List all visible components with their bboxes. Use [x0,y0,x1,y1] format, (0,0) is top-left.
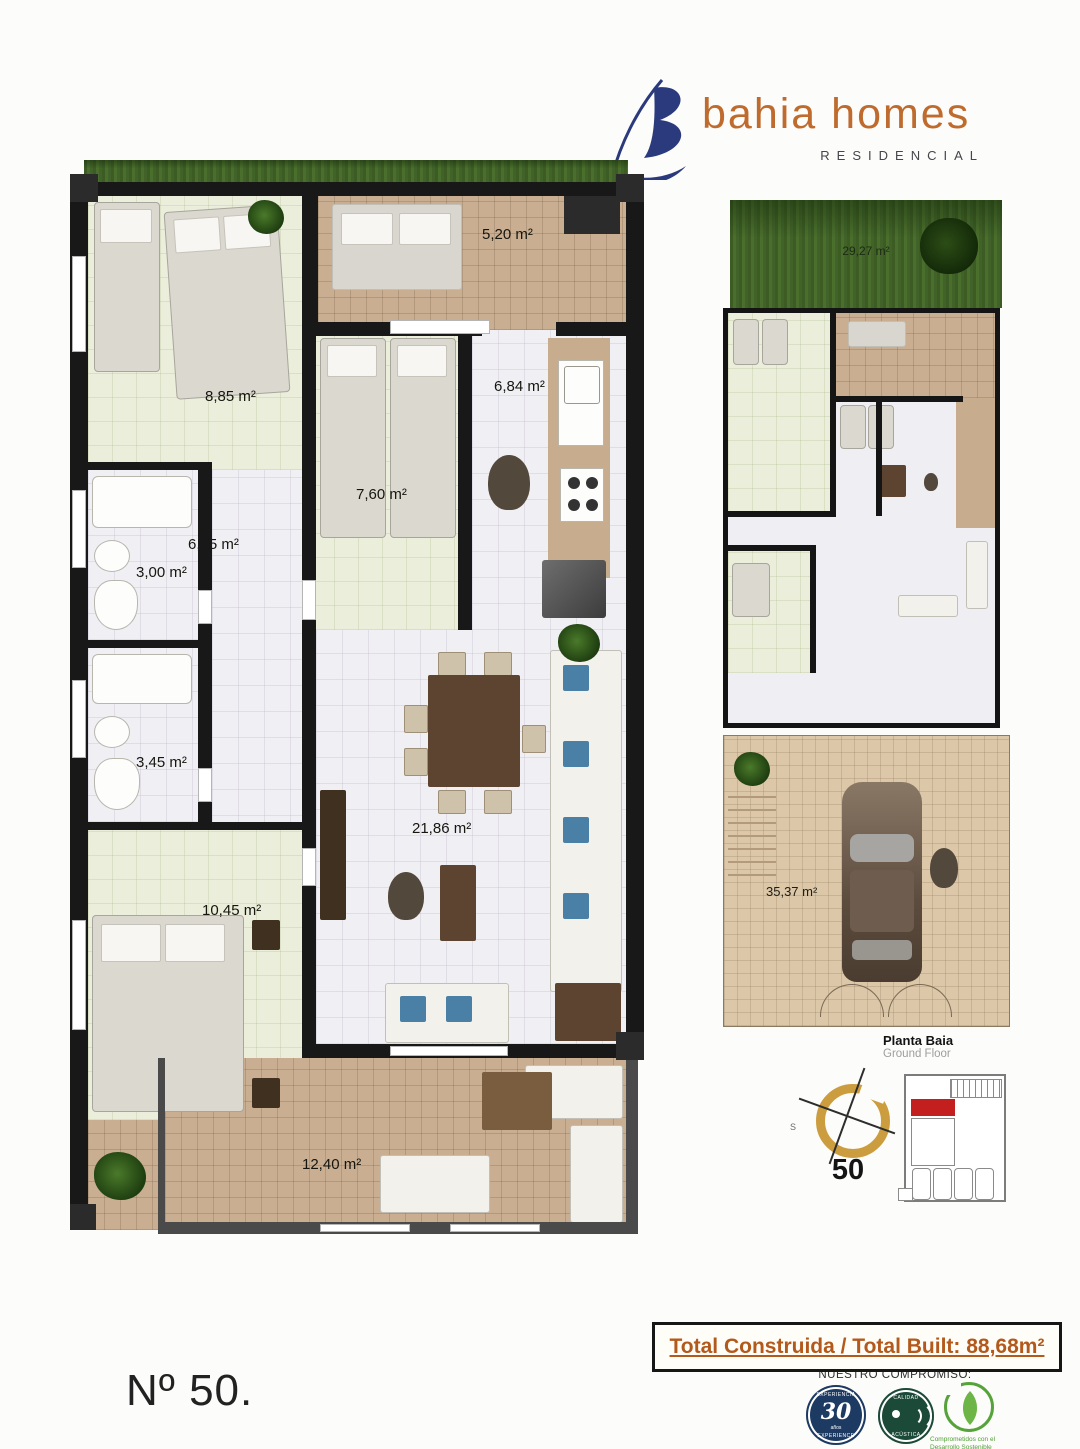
brand-name: bahia homes [702,90,970,139]
wall-bedroom-terrace [302,184,318,330]
acoustic-badge: CALIDAD ACÚSTICA [878,1388,934,1444]
plant [734,752,770,786]
wall-bath1-bath2 [88,640,212,648]
site-block [898,1188,913,1201]
basin-2 [94,716,130,748]
chair [438,790,466,814]
wall-bath1-top [88,462,212,470]
burner [568,499,580,511]
area-label-kitchen: 6,84 m² [494,378,545,395]
car-roof [850,870,914,932]
mini-sofa [898,595,958,617]
tree [920,218,978,274]
caption-subtitle: Ground Floor [883,1048,1003,1060]
steps [728,794,776,876]
compass-unit-number: 50 [800,1154,896,1187]
area-label-driveway: 35,37 m² [766,884,817,899]
bed-twin-1 [94,202,160,372]
sofa-right [550,650,622,992]
site-block [975,1168,994,1200]
pillow [101,924,161,962]
wall-terrace-right [626,1044,638,1234]
wall-bedroom-kitchen [458,330,472,630]
wall-hall-living [302,330,316,1044]
pillar-bottom-left [70,1204,96,1230]
badge-bottom-text: EXPERIENCE [806,1433,866,1439]
unit-number-label: Nº 50. [126,1366,253,1416]
plant [94,1152,146,1200]
ground-floor-plan: 29,27 m² [715,195,1015,1067]
window-left-2 [72,490,86,568]
pillar-mid-right [616,1032,644,1060]
area-label-terrace-top: 5,20 m² [482,226,533,243]
mini-wall [728,545,816,551]
sink-basin [564,366,600,404]
area-label-bedroom-small: 7,60 m² [356,486,407,503]
compass-south-letter: S [790,1122,796,1132]
area-label-living: 21,86 m² [412,820,471,837]
corner-table [555,983,621,1041]
terrace-sofa-2 [570,1125,623,1223]
floor-plan-page: bahia homes RESIDENCIAL [0,0,1080,1449]
area-label-hallway: 6,45 m² [188,536,239,553]
garden: 29,27 m² [730,200,1002,308]
compass: S 50 [800,1078,900,1188]
brand-subtitle: RESIDENCIAL [774,148,984,163]
pillow [100,209,152,243]
main-floor-plan: 8,85 m² 5,20 m² 7,60 m² 6,84 m² 6,45 m² … [70,160,648,1262]
car [842,782,922,982]
badge-top-text: EXPERIENCIA [806,1392,866,1398]
badge-number: 30 [806,1399,866,1425]
mini-wall [810,548,816,673]
chair [438,652,466,676]
sustainability-badge [944,1382,994,1432]
burner [568,477,580,489]
toilet-1 [94,580,138,630]
terrace-table [482,1072,552,1130]
area-label-bathroom-1: 3,00 m² [136,564,187,581]
mini-wall [876,398,882,516]
door-terrace-bottom [390,1046,508,1056]
mini-sofa [848,321,906,347]
plant [558,624,600,662]
mini-table [880,465,906,497]
leaf-icon [953,1391,987,1425]
cushion [563,893,589,919]
window-left-4 [72,920,86,1030]
person-figure [930,848,958,888]
car-windshield [850,834,914,862]
site-block [912,1168,931,1200]
bed-small-2 [390,338,456,538]
chair [484,790,512,814]
sound-wave-arc [904,1402,932,1430]
badge-top-text: CALIDAD [878,1395,934,1401]
pillow [173,216,221,253]
kitchen-sink [558,360,604,446]
cushion [563,741,589,767]
bathtub-2 [92,654,192,704]
mini-kitchen [956,398,995,528]
dining-table [428,675,520,787]
plan-caption: Planta Baia Ground Floor [883,1033,1003,1060]
site-block [911,1118,955,1166]
door-bedroom-master [302,848,316,886]
badge-sub-text: años [806,1425,866,1431]
site-row-top [950,1079,1002,1098]
terrace-top-sofa [332,204,462,290]
pillar-top-right [616,174,644,202]
garage-door-arc [888,984,952,1017]
driveway: 35,37 m² [723,735,1010,1027]
cushion [563,665,589,691]
experience-badge: EXPERIENCIA 30 años EXPERIENCE [806,1385,866,1445]
site-highlight-unit [911,1099,955,1116]
mini-bed [840,405,866,449]
sustainability-caption-line2: Desarrollo Sostenible [930,1444,1030,1449]
tv-cabinet [320,790,346,920]
cushion [400,996,426,1022]
wall-under-terrace-2 [556,322,628,336]
cushion [446,996,472,1022]
burner [586,477,598,489]
garage-door-arc [820,984,884,1017]
bed-small-1 [320,338,386,538]
sustainability-caption: Comprometidos con el Desarrollo Sostenib… [930,1436,1030,1449]
area-label-master: 10,45 m² [202,902,261,919]
nightstand [252,1078,280,1108]
chair [522,725,546,753]
car-rear-window [852,940,912,960]
caption-title: Planta Baia [883,1033,1003,1048]
pillow [397,345,447,377]
window-bottom-2 [450,1224,540,1232]
person-figure [488,455,530,510]
door-terrace-top [390,320,490,334]
chair [404,748,428,776]
site-block [933,1168,952,1200]
pillow [327,345,377,377]
mini-bed [733,319,759,365]
site-block [954,1168,973,1200]
mini-apartment-plan [723,308,1000,728]
total-built-label: Total Construida / Total Built: 88,68m² [670,1335,1045,1359]
person-figure [388,872,424,920]
window-bottom-1 [320,1224,410,1232]
badge-bottom-text: ACÚSTICA [878,1432,934,1438]
pillar-terrace-top [564,196,620,234]
coffee-table [440,865,476,941]
mini-bed [762,319,788,365]
mini-wall [728,511,836,517]
door-bathroom-1 [198,590,212,624]
plant [248,200,284,234]
mini-sofa [966,541,988,609]
leaf-ring-gap [943,1381,961,1395]
mini-person [924,473,938,491]
pillow [399,213,451,245]
terrace-bench [380,1155,490,1213]
kitchen-fridge [542,560,606,618]
chair [484,652,512,676]
wall-top [80,182,628,196]
bathtub-1 [92,476,192,528]
grass-strip [84,160,628,184]
wall-master-top [88,822,302,830]
pillow [341,213,393,245]
wall-terrace-left [158,1058,165,1230]
cushion [563,817,589,843]
sofa-bottom [385,983,509,1043]
site-plan [898,1072,1016,1210]
pillar-top-left [70,174,98,202]
bed-master [92,915,244,1112]
mini-wall [830,313,836,513]
bed-twin-2 [164,204,291,399]
basin-1 [94,540,130,572]
total-built-box: Total Construida / Total Built: 88,68m² [652,1322,1062,1372]
pillow [165,924,225,962]
toilet-2 [94,758,140,810]
wall-right [626,182,644,1044]
sustainability-caption-line1: Comprometidos con el [930,1436,1030,1444]
mini-wall [833,396,963,402]
brand-logo: bahia homes RESIDENCIAL [598,76,998,180]
area-label-bathroom-2: 3,45 m² [136,754,187,771]
window-left-1 [72,256,86,352]
area-label-bedroom-twin: 8,85 m² [205,388,256,405]
area-label-terrace-bottom: 12,40 m² [302,1156,361,1173]
sound-waves-icon [892,1410,900,1418]
door-bathroom-2 [198,768,212,802]
chair [404,705,428,733]
door-bedroom-small [302,580,316,620]
burner [586,499,598,511]
mini-bed [732,563,770,617]
nightstand [252,920,280,950]
kitchen-stove [560,468,604,522]
window-left-3 [72,680,86,758]
